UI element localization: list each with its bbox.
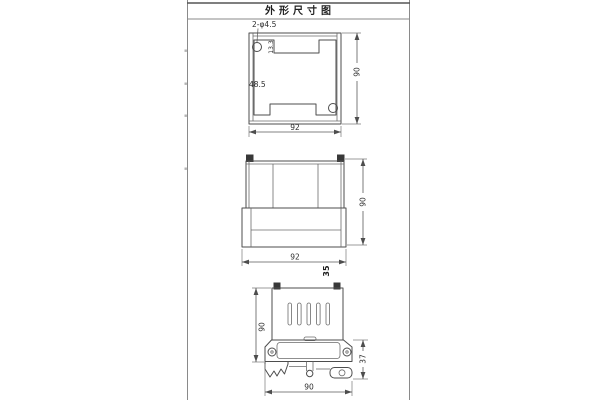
base-screw-left <box>268 348 276 356</box>
base-screw-right-slot <box>346 351 348 353</box>
frame-tick <box>185 50 187 52</box>
base-screw-left-slot <box>271 351 273 353</box>
front-view-depth-label: 35 <box>322 265 331 277</box>
frame-tick <box>185 83 187 85</box>
drawing-title: 外形尺寸图 <box>264 4 335 17</box>
cavity-width-label: 48.5 <box>249 80 266 89</box>
front-view-height-label: 90 <box>359 197 368 207</box>
top-view-cavity-contour <box>254 40 336 115</box>
top-view-outer-shell <box>249 33 341 124</box>
front-view: 90 92 35 <box>242 155 368 277</box>
front-view-body <box>246 161 344 208</box>
base-screw-right <box>343 348 351 356</box>
drawing-sheet: 外形尺寸图 2-φ4.5 13.3 48.5 90 92 <box>0 0 600 400</box>
vent-slot <box>288 303 292 325</box>
din-rail-clip <box>265 362 352 379</box>
frame-tick <box>185 115 187 117</box>
base-panel <box>277 343 340 359</box>
vent-slot <box>326 303 330 325</box>
front-view-base <box>242 208 346 247</box>
hole-callout-label: 2-φ4.5 <box>252 20 277 29</box>
vent-slot <box>298 303 302 325</box>
dimension-drawing-canvas: 外形尺寸图 2-φ4.5 13.3 48.5 90 92 <box>0 0 600 400</box>
side-view: 90 37 90 <box>252 283 368 396</box>
side-view-body <box>272 288 343 340</box>
top-view-height-label: 90 <box>353 67 362 77</box>
side-view-height-label: 90 <box>258 322 267 332</box>
side-view-width-label: 90 <box>304 383 314 392</box>
clip-pendant-hole <box>307 370 313 376</box>
clip-latch <box>330 368 352 379</box>
side-view-rail-label: 37 <box>359 354 368 364</box>
frame-tick <box>185 168 187 170</box>
front-view-width-label: 92 <box>290 253 300 262</box>
notch-depth-label: 13.3 <box>268 40 275 54</box>
top-view: 2-φ4.5 13.3 48.5 90 92 <box>249 20 362 137</box>
clip-latch-hole <box>339 370 345 376</box>
clip-spring-left <box>265 362 288 378</box>
vent-slot <box>307 303 311 325</box>
vent-slot <box>317 303 321 325</box>
top-view-width-label: 92 <box>290 123 300 132</box>
